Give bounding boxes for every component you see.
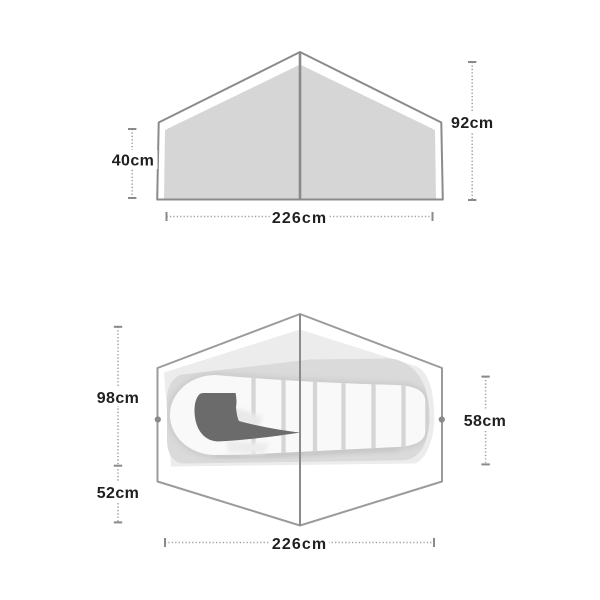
svg-text:40cm: 40cm (112, 153, 155, 170)
svg-text:52cm: 52cm (97, 485, 140, 502)
svg-text:226cm: 226cm (272, 536, 327, 553)
svg-text:98cm: 98cm (97, 390, 140, 407)
svg-text:226cm: 226cm (272, 210, 327, 227)
svg-text:92cm: 92cm (451, 115, 494, 132)
svg-text:58cm: 58cm (464, 413, 507, 430)
